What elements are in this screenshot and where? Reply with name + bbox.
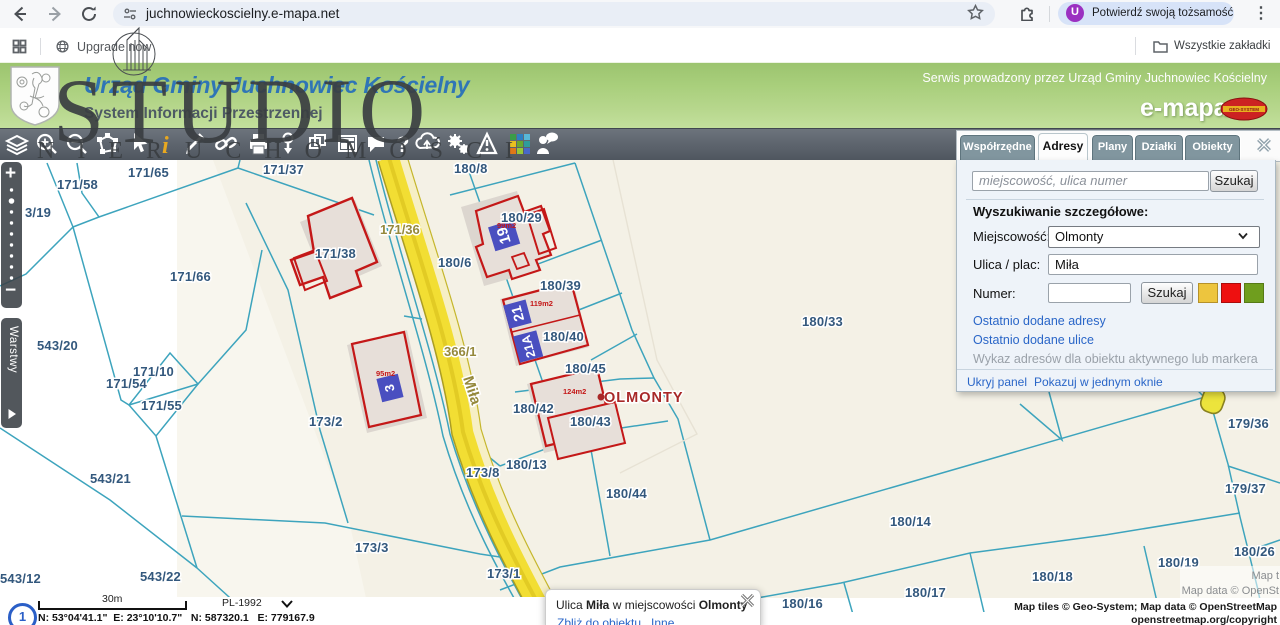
svg-text:119m2: 119m2 [530,299,553,308]
svg-text:180/17: 180/17 [905,585,946,600]
svg-text:173/2: 173/2 [309,414,343,429]
svg-text:180/18: 180/18 [1032,569,1073,584]
svg-text:173/1: 173/1 [487,566,521,581]
svg-text:171/58: 171/58 [57,177,98,192]
svg-text:180/13: 180/13 [506,457,547,472]
svg-text:171/55: 171/55 [141,398,182,413]
svg-text:180/44: 180/44 [606,486,648,501]
svg-text:180/29: 180/29 [501,210,542,225]
svg-text:180/45: 180/45 [565,361,606,376]
svg-text:180/14: 180/14 [890,514,932,529]
svg-text:180/26: 180/26 [1234,544,1275,559]
svg-text:543/21: 543/21 [90,471,131,486]
svg-text:180/40: 180/40 [543,329,584,344]
svg-text:3/19: 3/19 [25,205,51,220]
svg-text:543/22: 543/22 [140,569,181,584]
svg-text:124m2: 124m2 [563,387,586,396]
svg-text:171/54: 171/54 [106,376,148,391]
svg-text:OLMONTY: OLMONTY [604,390,684,406]
svg-text:171/65: 171/65 [128,165,169,180]
svg-text:180/43: 180/43 [570,414,611,429]
svg-text:95m2: 95m2 [376,369,395,378]
svg-text:179/37: 179/37 [1225,481,1266,496]
svg-text:543/12: 543/12 [0,571,41,586]
svg-text:180/33: 180/33 [802,314,843,329]
svg-text:366/1: 366/1 [444,344,477,359]
svg-text:171/66: 171/66 [170,269,211,284]
svg-text:543/20: 543/20 [37,338,78,353]
svg-text:180/6: 180/6 [438,255,472,270]
svg-text:Map t: Map t [1251,570,1279,582]
svg-text:173/8: 173/8 [466,465,500,480]
svg-text:179/36: 179/36 [1228,416,1269,431]
svg-text:180/39: 180/39 [540,278,581,293]
svg-text:171/38: 171/38 [315,246,356,261]
svg-text:173/3: 173/3 [355,540,389,555]
svg-text:180/42: 180/42 [513,401,554,416]
svg-text:171/36: 171/36 [380,222,420,237]
svg-text:Map data © OpenSt: Map data © OpenSt [1182,585,1279,597]
svg-text:GEO-SYSTEM: GEO-SYSTEM [1229,107,1259,112]
